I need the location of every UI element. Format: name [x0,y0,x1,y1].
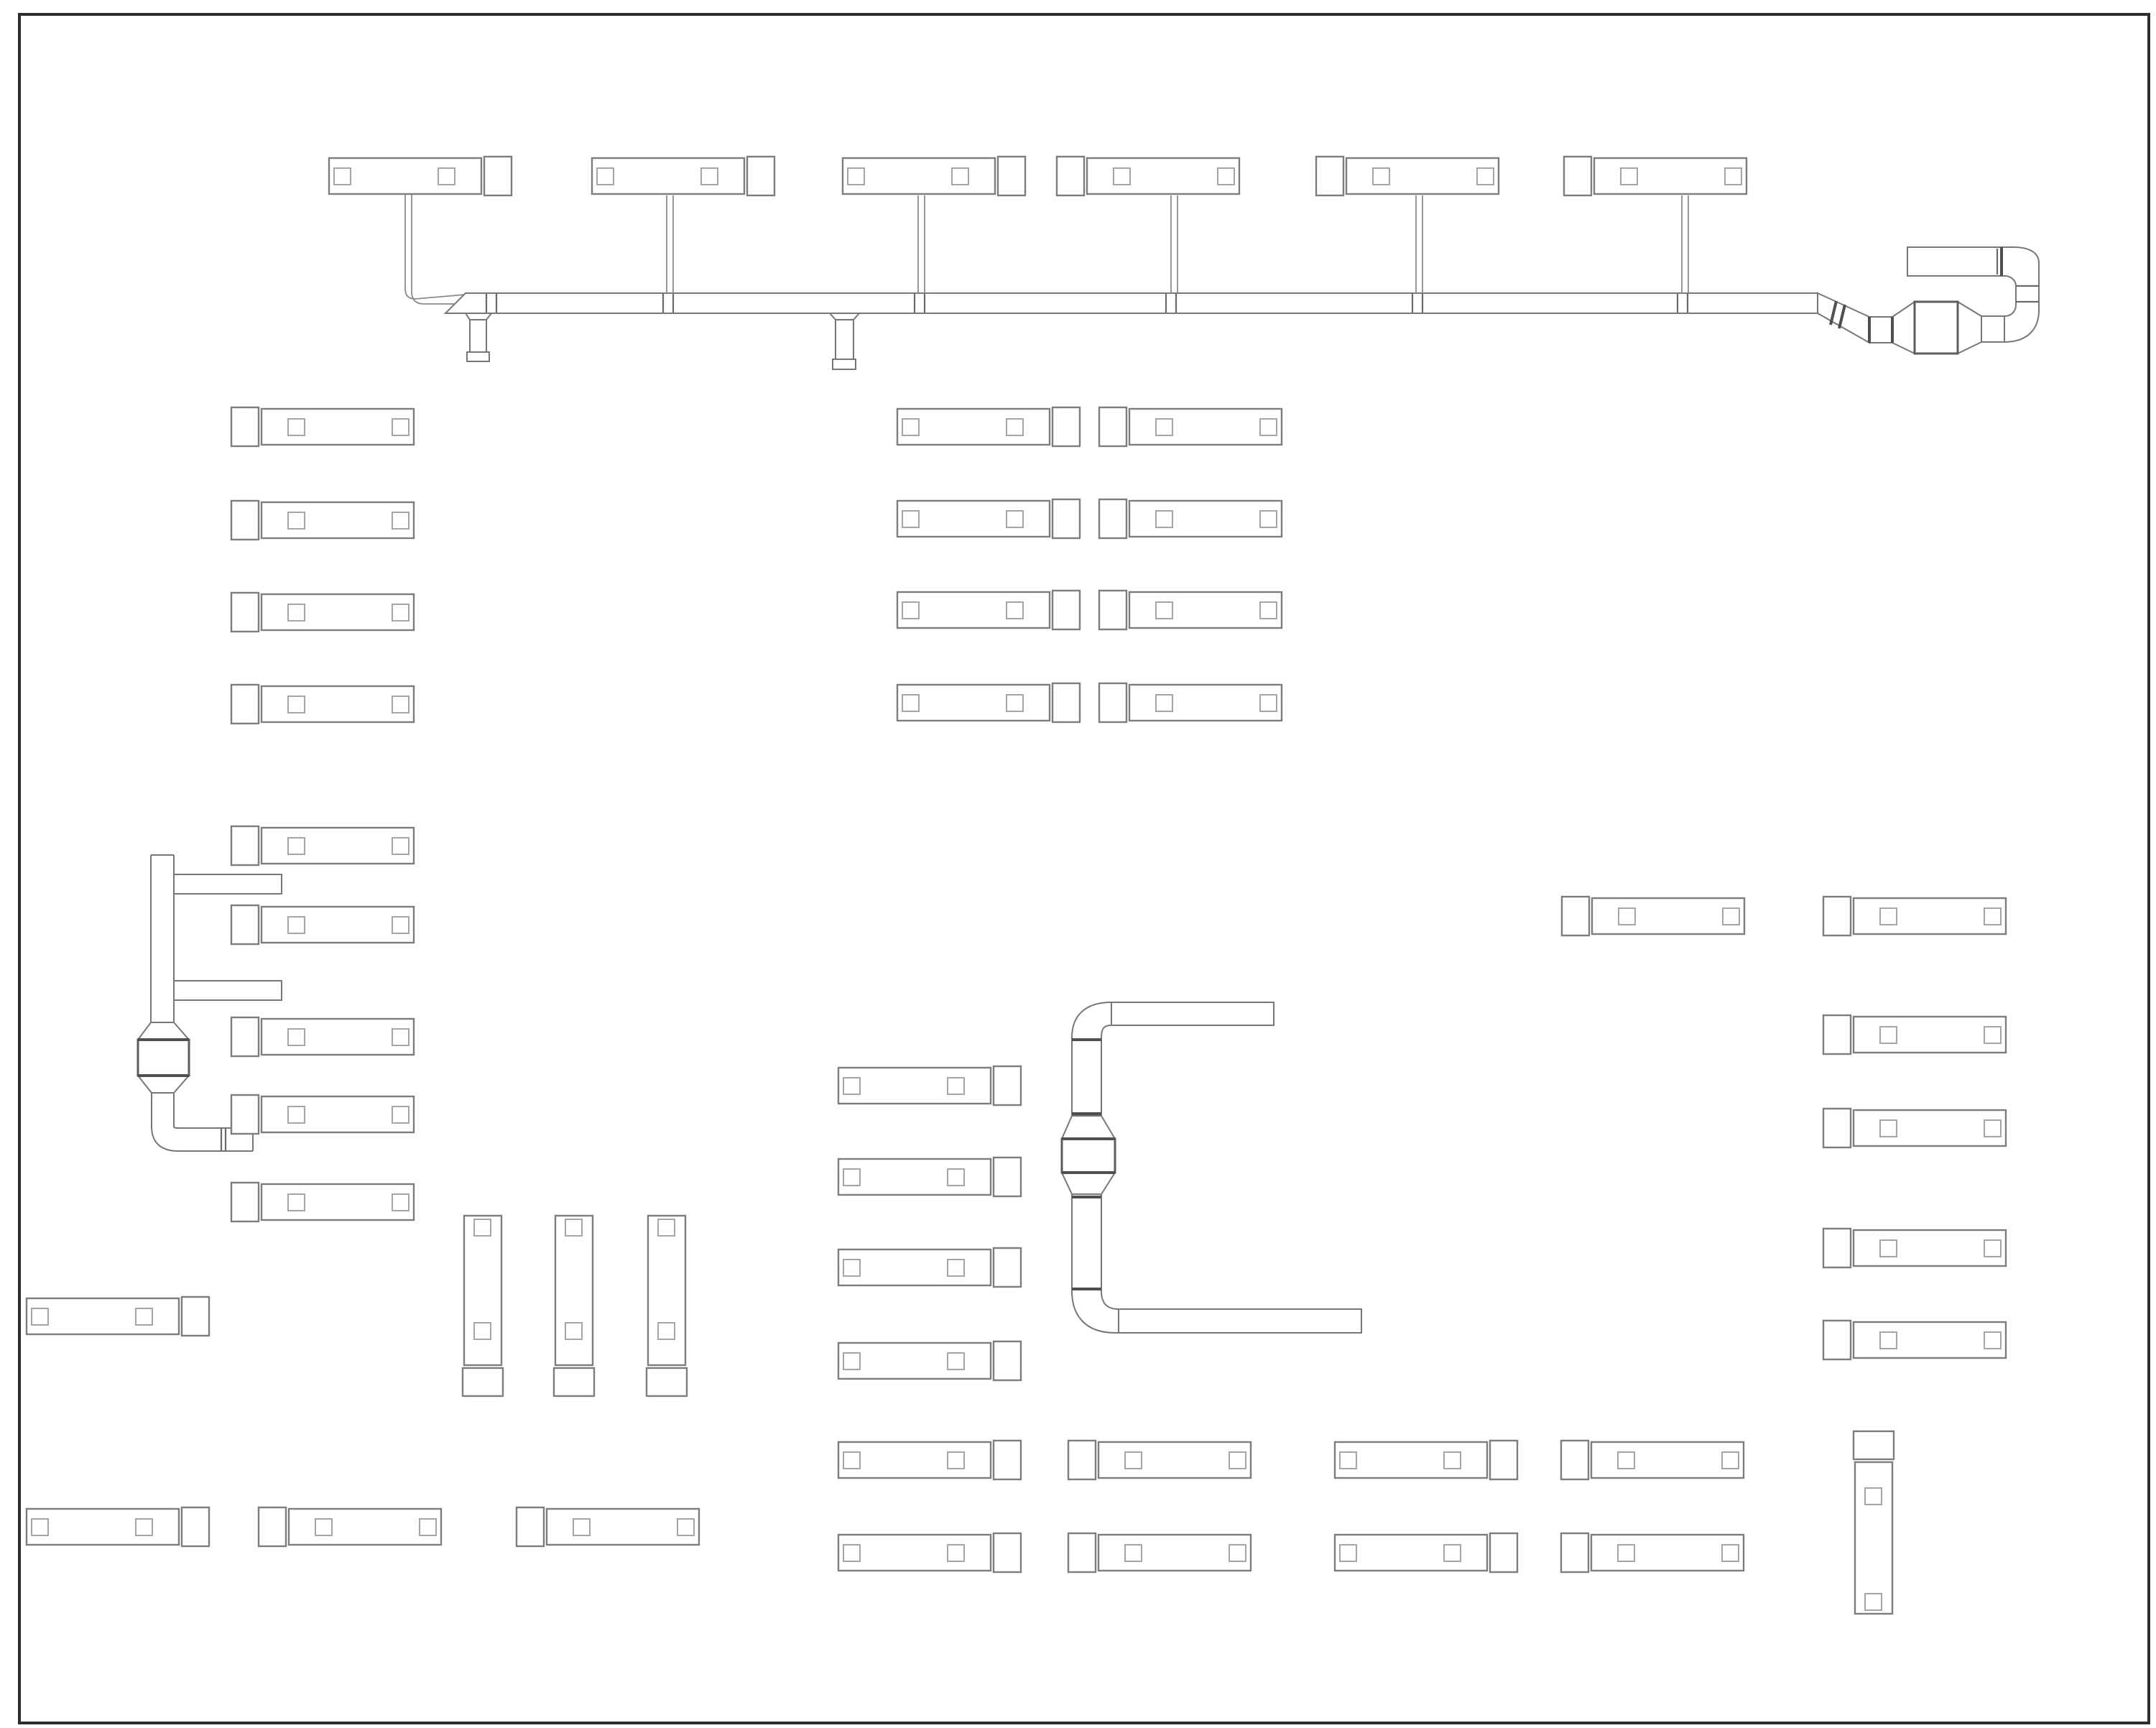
unit-body [329,158,481,194]
unit-flange [1823,897,1851,935]
unit-flange [994,1158,1021,1196]
unit-port [843,1545,860,1561]
unit-port [1984,1120,2001,1137]
duct-unit [1099,591,1282,629]
duct-unit [1823,897,2006,935]
unit-body [547,1509,699,1545]
unit-flange [231,407,259,446]
branch-elbow-inner [412,194,455,304]
drawing-page [0,0,2156,1728]
unit-body [464,1216,501,1365]
unit-port [1880,1332,1897,1349]
center-inline-unit-box [1062,1139,1115,1173]
unit-port [288,917,305,933]
unit-port [1007,602,1023,619]
duct-unit [27,1297,209,1336]
unit-body [1129,685,1282,721]
unit-flange [517,1507,544,1546]
unit-port [1619,908,1635,925]
unit-port [1880,1027,1897,1043]
unit-port [658,1219,675,1236]
unit-body [1591,1442,1744,1478]
duct-unit [231,593,414,632]
unit-port [948,1078,964,1094]
unit-port [1984,908,2001,925]
transition-contract [1958,302,1981,354]
unit-port [1156,511,1172,527]
u-bend-outer [2002,247,2039,342]
unit-body [1335,1535,1487,1571]
branch-elbow-outer [405,194,466,299]
center-elbow-top-outer [1072,1002,1111,1038]
unit-flange [1099,407,1126,446]
unit-port [392,512,409,529]
unit-port [843,1260,860,1276]
takeoff-cap-2 [833,359,856,369]
duct-unit [329,157,512,195]
unit-flange [1490,1533,1517,1572]
unit-flange [1052,591,1080,629]
duct-unit [843,157,1025,195]
unit-port [1125,1452,1142,1469]
unit-flange [231,1017,259,1056]
duct-unit [1823,1321,2006,1359]
unit-port [288,1194,305,1211]
unit-body [1087,158,1239,194]
unit-port [1260,419,1277,435]
unit-port [1621,168,1637,185]
duct-unit [838,1066,1021,1105]
unit-body [838,1535,991,1571]
unit-flange [231,593,259,632]
unit-port [843,1169,860,1186]
unit-flange [1562,897,1589,935]
unit-port [1984,1332,2001,1349]
duct-unit [231,1095,414,1134]
unit-body [262,1019,414,1055]
unit-port [1880,908,1897,925]
duct-unit [1099,499,1282,538]
unit-port [1722,1545,1739,1561]
unit-port [1725,168,1741,185]
duct-unit [1068,1441,1251,1479]
unit-flange [231,685,259,724]
unit-body [897,409,1050,445]
unit-port [902,602,919,619]
unit-port [1260,511,1277,527]
unit-port [1373,168,1389,185]
left-branch-duct-1 [174,874,282,894]
unit-port [438,168,455,185]
unit-body [27,1298,179,1334]
duct-unit [1823,1109,2006,1147]
unit-port [1477,168,1494,185]
unit-body [289,1509,441,1545]
unit-flange [231,501,259,540]
unit-port [565,1219,582,1236]
unit-flange [182,1507,209,1546]
duct-unit [1561,1441,1744,1479]
unit-port [1007,511,1023,527]
unit-port [843,1452,860,1469]
unit-flange [1854,1431,1894,1459]
duct-unit [1099,683,1282,722]
duct-unit [231,905,414,944]
unit-port [474,1219,491,1236]
unit-flange [994,1066,1021,1105]
unit-port [948,1545,964,1561]
unit-port [902,695,919,711]
duct-unit [1099,407,1282,446]
duct-unit [259,1507,441,1546]
unit-port [1114,168,1130,185]
unit-port [948,1260,964,1276]
unit-flange [1490,1441,1517,1479]
unit-port [420,1519,436,1535]
transition-expand [1892,302,1915,354]
unit-body [1854,898,2006,934]
unit-body [1855,1462,1892,1614]
duct-unit [897,499,1080,538]
takeoff-bump-1 [466,313,491,320]
unit-body [897,501,1050,537]
unit-flange [1099,591,1126,629]
unit-body [897,685,1050,721]
unit-port [392,1194,409,1211]
duct-unit [231,1017,414,1056]
duct-unit [1335,1533,1517,1572]
unit-flange [994,1441,1021,1479]
unit-flange [1052,683,1080,722]
unit-body [1346,158,1499,194]
unit-port [948,1169,964,1186]
unit-body [1854,1017,2006,1053]
unit-flange [998,157,1025,195]
duct-unit [647,1216,687,1396]
unit-flange [1099,683,1126,722]
unit-port [1260,695,1277,711]
duct-unit [838,1533,1021,1572]
unit-body [838,1343,991,1379]
duct-unit [592,157,774,195]
unit-port [315,1519,332,1535]
center-elbow-bottom-inner [1101,1291,1119,1309]
unit-body [1854,1322,2006,1358]
unit-port [573,1519,590,1535]
unit-body [843,158,995,194]
unit-body [262,594,414,630]
unit-port [1229,1545,1246,1561]
center-taper-bottom [1062,1173,1115,1194]
unit-port [288,419,305,435]
unit-flange [1823,1229,1851,1267]
duct-unit [1823,1229,2006,1267]
unit-flange [1564,157,1591,195]
unit-flange [231,905,259,944]
unit-port [288,696,305,713]
unit-port [1340,1545,1356,1561]
unit-port [1444,1452,1461,1469]
unit-body [1854,1110,2006,1146]
duct-unit [1561,1533,1744,1572]
unit-body [555,1216,593,1365]
unit-port [474,1323,491,1339]
unit-port [288,1029,305,1045]
unit-port [1260,602,1277,619]
unit-body [262,1096,414,1132]
unit-port [948,1353,964,1369]
unit-flange [231,826,259,865]
duct-unit [1335,1441,1517,1479]
takeoff-cap-1 [467,352,489,361]
unit-body [1129,592,1282,628]
unit-port [288,512,305,529]
unit-port [597,168,614,185]
unit-port [288,1106,305,1123]
unit-port [843,1078,860,1094]
duct-unit [231,407,414,446]
unit-flange [994,1533,1021,1572]
duct-unit [897,683,1080,722]
unit-flange [484,157,512,195]
unit-port [1218,168,1234,185]
unit-flange [1068,1533,1096,1572]
center-elbow-bottom-outer [1072,1291,1119,1333]
angled-duct [1818,293,1869,343]
unit-body [838,1159,991,1195]
unit-body [262,828,414,864]
duct-unit [231,685,414,724]
takeoff-stub-2 [836,320,853,359]
unit-port [288,838,305,854]
unit-flange [231,1183,259,1221]
unit-body [1591,1535,1744,1571]
unit-port [392,604,409,621]
unit-port [1156,695,1172,711]
unit-port [1984,1240,2001,1257]
unit-port [1865,1488,1882,1505]
duct-unit [1057,157,1239,195]
u-bend-inner [2002,276,2016,316]
left-taper-top [138,1022,189,1040]
takeoff-bump-2 [830,313,859,320]
duct-unit [231,1183,414,1221]
duct-unit [897,407,1080,446]
unit-flange [463,1368,503,1396]
unit-body [1335,1442,1487,1478]
unit-flange [259,1507,286,1546]
duct-unit [838,1248,1021,1287]
center-elbow-top-inner [1101,1025,1111,1038]
unit-body [838,1442,991,1478]
unit-flange [1052,499,1080,538]
duct-unit [838,1158,1021,1196]
unit-flange [231,1095,259,1134]
unit-body [262,907,414,943]
unit-body [1854,1230,2006,1266]
duct-unit [1562,897,1744,935]
unit-body [262,686,414,722]
duct-unit [838,1341,1021,1380]
unit-port [392,419,409,435]
left-taper-bottom [138,1076,189,1093]
unit-port [1880,1240,1897,1257]
unit-port [1007,695,1023,711]
unit-port [1229,1452,1246,1469]
center-bottom-duct [1119,1309,1361,1333]
unit-body [27,1509,179,1545]
duct-unit [1068,1533,1251,1572]
unit-flange [994,1248,1021,1287]
unit-port [1723,908,1739,925]
duct-unit [1564,157,1746,195]
left-branch-duct-2 [174,981,282,1000]
unit-body [1098,1442,1251,1478]
unit-flange [1068,1441,1096,1479]
unit-body [648,1216,685,1365]
unit-flange [1823,1015,1851,1054]
inline-unit-box [1915,302,1958,354]
unit-port [1444,1545,1461,1561]
unit-port [392,917,409,933]
unit-port [32,1308,48,1325]
duct-unit [897,591,1080,629]
duct-unit [231,826,414,865]
unit-port [1618,1452,1634,1469]
unit-port [392,696,409,713]
unit-port [952,168,968,185]
unit-flange [182,1297,209,1336]
unit-port [1880,1120,1897,1137]
unit-port [1722,1452,1739,1469]
unit-flange [1099,499,1126,538]
takeoff-stub-1 [470,320,486,352]
duct-unit [554,1216,594,1396]
duct-unit [27,1507,209,1546]
u-bend-end-duct [1907,247,2002,276]
unit-port [1984,1027,2001,1043]
unit-port [1125,1545,1142,1561]
unit-body [1594,158,1746,194]
unit-port [1865,1594,1882,1610]
unit-port [1007,419,1023,435]
unit-port [392,838,409,854]
duct-layout-canvas [0,0,2156,1728]
unit-port [32,1519,48,1535]
duct-stub [1981,316,2004,342]
unit-flange [1052,407,1080,446]
unit-flange [1561,1533,1588,1572]
left-inline-unit-box [138,1040,189,1076]
unit-body [838,1249,991,1285]
unit-body [1129,501,1282,537]
unit-port [902,511,919,527]
unit-flange [647,1368,687,1396]
unit-body [262,502,414,538]
duct-unit [231,501,414,540]
unit-port [392,1106,409,1123]
unit-port [392,1029,409,1045]
unit-port [658,1323,675,1339]
unit-port [701,168,718,185]
unit-flange [1057,157,1084,195]
unit-body [838,1068,991,1104]
unit-port [288,604,305,621]
unit-port [948,1452,964,1469]
center-top-duct [1111,1002,1274,1025]
unit-body [262,1184,414,1220]
main-duct-body [445,293,1818,313]
unit-port [565,1323,582,1339]
duct-unit [838,1441,1021,1479]
unit-body [1098,1535,1251,1571]
unit-body [262,409,414,445]
unit-flange [1823,1109,1851,1147]
unit-body [897,592,1050,628]
unit-port [677,1519,694,1535]
unit-flange [1823,1321,1851,1359]
unit-port [843,1353,860,1369]
unit-flange [994,1341,1021,1380]
unit-port [1156,419,1172,435]
unit-flange [1561,1441,1588,1479]
unit-body [1592,898,1744,934]
unit-port [848,168,864,185]
duct-unit [1854,1431,1894,1614]
duct-unit [517,1507,699,1546]
duct-unit [1823,1015,2006,1054]
unit-port [136,1308,152,1325]
coupling [1869,317,1892,343]
duct-unit [1316,157,1499,195]
unit-port [902,419,919,435]
unit-body [1129,409,1282,445]
unit-port [1340,1452,1356,1469]
unit-port [1618,1545,1634,1561]
unit-flange [1316,157,1343,195]
unit-body [592,158,744,194]
unit-flange [747,157,774,195]
duct-unit [463,1216,503,1396]
unit-port [334,168,351,185]
unit-port [1156,602,1172,619]
center-taper-top [1062,1116,1115,1139]
unit-flange [554,1368,594,1396]
unit-port [136,1519,152,1535]
